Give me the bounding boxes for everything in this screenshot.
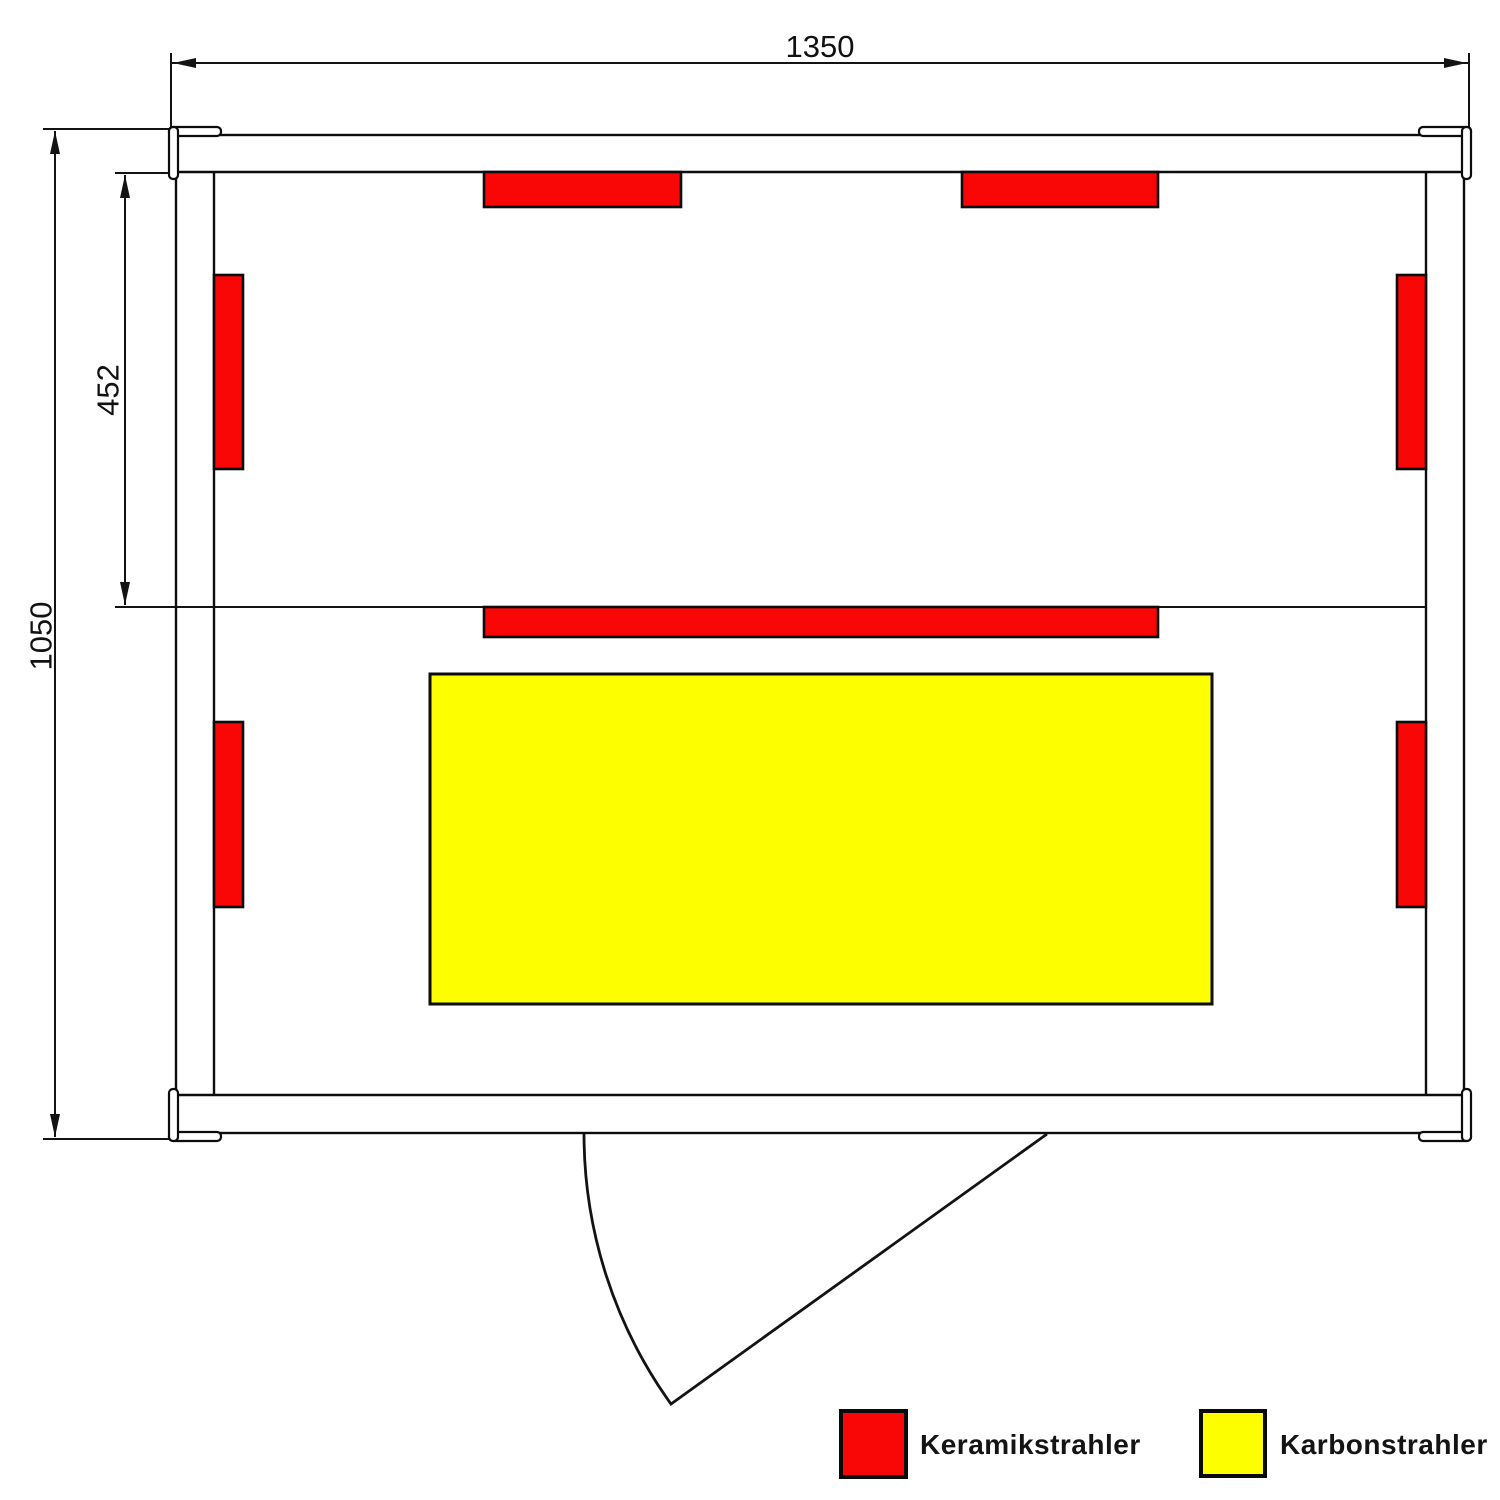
dimension-overall-depth: 1050 [24,129,172,1139]
sauna-floor-plan: 1350 1050 452 [0,0,1500,1500]
corner-tab-vertical [169,1089,178,1141]
rear-zone-depth-label: 452 [91,364,126,416]
arrow-up-icon [50,131,60,154]
arrow-up-icon [120,175,130,198]
door-swing-arc [584,1134,1047,1404]
overall-width-label: 1350 [786,29,855,64]
legend-karbonstrahler-label: Karbonstrahler [1280,1429,1488,1460]
ceramic-heater-center [484,607,1158,637]
corner-tab-vertical [1462,127,1471,179]
legend: Keramikstrahler Karbonstrahler [841,1411,1488,1477]
diagram-canvas: 1350 1050 452 [0,0,1500,1500]
legend-keramikstrahler-swatch [841,1411,906,1477]
corner-tab-vertical [1462,1089,1471,1141]
ceramic-heater-rear-left [484,172,681,207]
dimension-rear-zone-depth: 452 [91,175,131,605]
ceramic-heater-right-lower [1397,722,1426,907]
arrow-left-icon [173,58,196,68]
ceramic-heater-left-upper [214,275,243,469]
arrow-right-icon [1444,58,1467,68]
corner-tab-vertical [169,127,178,179]
legend-karbonstrahler-swatch [1201,1411,1265,1476]
arrow-down-icon [50,1114,60,1137]
arrow-down-icon [120,582,130,605]
ceramic-heater-left-lower [214,722,243,907]
legend-keramikstrahler-label: Keramikstrahler [920,1429,1141,1460]
overall-depth-label: 1050 [24,602,59,671]
ceramic-heater-right-upper [1397,275,1426,469]
dimension-overall-width: 1350 [171,29,1469,128]
ceramic-heater-rear-right [962,172,1158,207]
carbon-heater-bench [430,674,1212,1004]
